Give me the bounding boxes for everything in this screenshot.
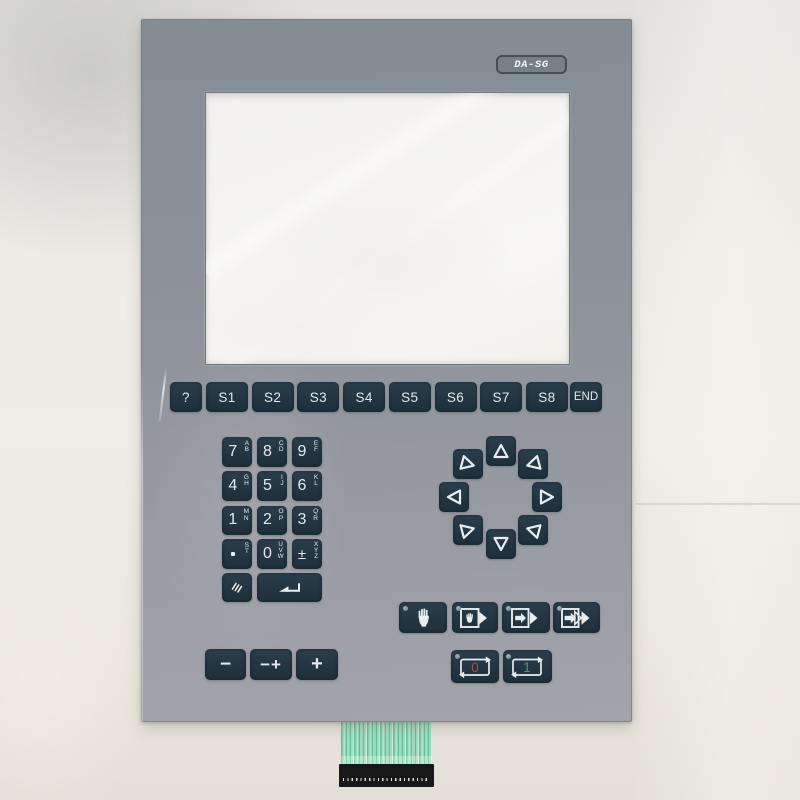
svg-text:1: 1: [523, 660, 531, 675]
svg-text:0: 0: [471, 660, 479, 675]
